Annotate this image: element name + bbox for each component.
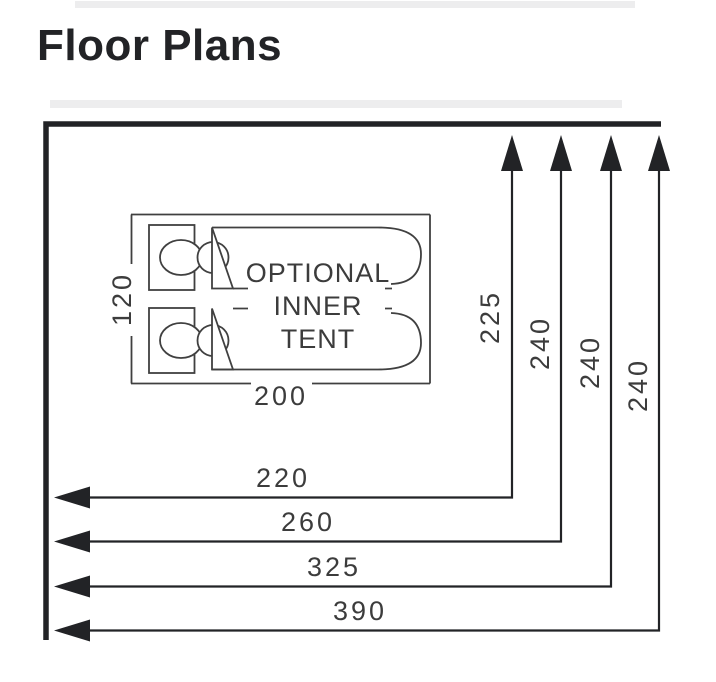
artifact-bands — [50, 1, 635, 108]
inner-tent-label-line1: OPTIONAL — [246, 258, 391, 288]
dim-line-240c — [88, 169, 659, 631]
inner-tent-depth-label: 120 — [107, 272, 137, 326]
upper-edge-band — [50, 100, 622, 108]
depth-label-1: 225 — [475, 290, 505, 344]
up-arrow-icon — [501, 135, 523, 171]
fold-triangle — [212, 309, 233, 370]
dim-line-240b — [88, 169, 611, 587]
width-dimensions: 220 260 325 390 — [54, 463, 387, 642]
depth-label-3: 240 — [575, 335, 605, 389]
depth-label-2: 240 — [525, 316, 555, 370]
width-label-1: 220 — [256, 463, 310, 493]
left-arrow-icon — [54, 531, 90, 553]
up-arrow-icon — [648, 135, 670, 171]
floor-plan-figure: Floor Plans — [0, 0, 716, 682]
top-edge-band — [75, 1, 635, 8]
floor-plan-diagram: OPTIONAL INNER TENT 120 200 225 240 240 … — [0, 0, 716, 682]
inner-tent-label-line3: TENT — [281, 324, 356, 354]
width-label-4: 390 — [333, 596, 387, 626]
inner-tent-width-label: 200 — [254, 381, 308, 411]
inner-tent-label-line2: INNER — [273, 291, 362, 321]
width-label-3: 325 — [307, 552, 361, 582]
up-arrow-icon — [550, 135, 572, 171]
head-ellipse — [160, 323, 202, 358]
fold-triangle — [212, 228, 233, 289]
left-arrow-icon — [54, 576, 90, 598]
width-label-2: 260 — [281, 507, 335, 537]
left-arrow-icon — [54, 620, 90, 642]
head-ellipse — [160, 240, 202, 275]
up-arrow-icon — [600, 135, 622, 171]
depth-label-4: 240 — [623, 358, 653, 412]
left-arrow-icon — [54, 487, 90, 509]
